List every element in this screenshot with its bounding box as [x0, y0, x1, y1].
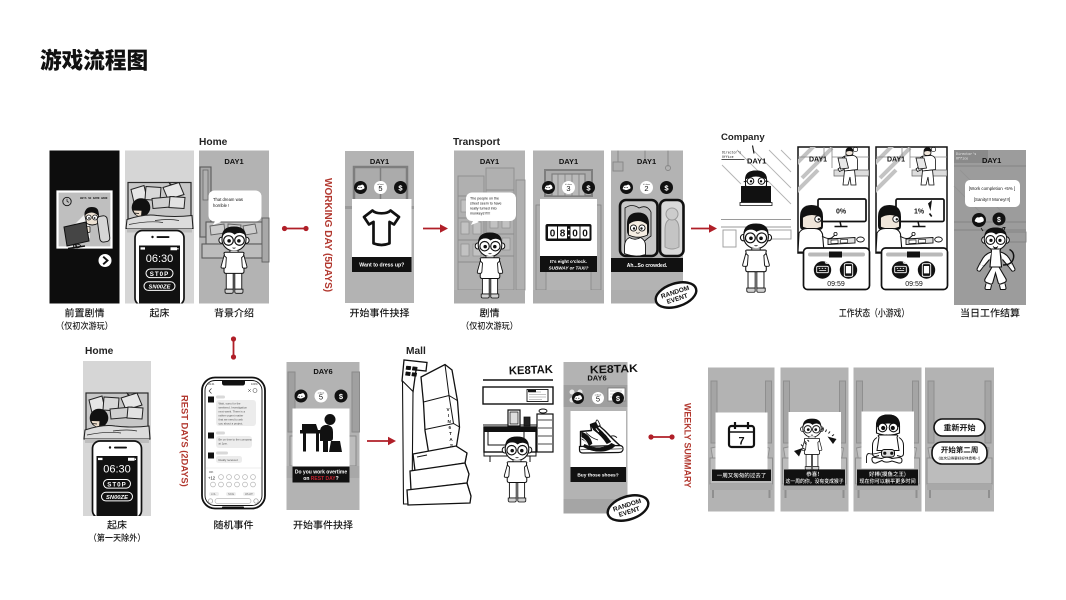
- svg-text:DAY1: DAY1: [747, 157, 766, 166]
- svg-text:DAY1: DAY1: [480, 157, 499, 166]
- svg-text:T: T: [449, 431, 452, 436]
- svg-text:OK: OK: [209, 470, 213, 474]
- svg-text:0: 0: [582, 229, 588, 240]
- svg-text:street seem to have: street seem to have: [470, 202, 502, 206]
- svg-text:it's time: it's time: [565, 183, 573, 186]
- svg-text:REST DAYS (2DAYS): REST DAYS (2DAYS): [180, 395, 190, 487]
- svg-text:Really received: Really received: [219, 458, 239, 462]
- svg-text:8: 8: [560, 229, 566, 240]
- svg-text:ST0P: ST0P: [150, 271, 169, 278]
- svg-text:Mall: Mall: [406, 346, 426, 357]
- svg-text:$: $: [997, 217, 1001, 224]
- svg-text:[Work completion +5% ]: [Work completion +5% ]: [969, 186, 1015, 191]
- svg-text:Transport: Transport: [453, 137, 501, 148]
- svg-text:6: 6: [449, 425, 452, 430]
- svg-text:NICE: NICE: [228, 492, 234, 496]
- svg-text:09:41: 09:41: [208, 382, 215, 386]
- svg-text:0: 0: [572, 229, 578, 240]
- svg-text:The people on the: The people on the: [470, 197, 499, 201]
- svg-text:Buy those shoes?: Buy those shoes?: [577, 473, 618, 479]
- svg-text:0%: 0%: [836, 209, 847, 216]
- svg-text:Company: Company: [721, 132, 765, 143]
- svg-text:06:30: 06:30: [146, 253, 174, 265]
- svg-text:WHAT!: WHAT!: [245, 492, 253, 496]
- svg-text:at least: at least: [595, 393, 602, 396]
- svg-text:at least: at least: [377, 183, 384, 186]
- svg-text:09:59: 09:59: [827, 281, 845, 288]
- svg-text:1%: 1%: [914, 209, 925, 216]
- svg-text:ST0P: ST0P: [107, 481, 126, 488]
- svg-text:S: S: [450, 443, 453, 448]
- svg-text:DAY1: DAY1: [809, 157, 827, 164]
- svg-text:DAY6: DAY6: [587, 374, 606, 383]
- svg-text:at least: at least: [318, 391, 325, 394]
- svg-text:DAY1: DAY1: [370, 157, 389, 166]
- svg-text:Office: Office: [722, 155, 734, 159]
- svg-text:0: 0: [550, 229, 556, 240]
- svg-text:Home: Home: [85, 346, 114, 357]
- svg-text:WEEKLY SUMMARY: WEEKLY SUMMARY: [683, 403, 693, 488]
- svg-text:DAY1: DAY1: [637, 157, 656, 166]
- svg-text:DAY1: DAY1: [982, 156, 1001, 165]
- svg-text:06:30: 06:30: [103, 464, 131, 476]
- svg-text:monkeys?!!!!: monkeys?!!!!: [470, 212, 490, 216]
- svg-text:Want to dress up?: Want to dress up?: [359, 263, 404, 269]
- svg-text:WORKING DAY (5DAYS): WORKING DAY (5DAYS): [322, 178, 333, 292]
- svg-text:09:59: 09:59: [905, 281, 923, 288]
- svg-text:SN00ZE: SN00ZE: [149, 285, 172, 291]
- svg-text:Director's: Director's: [956, 152, 976, 157]
- svg-text:on REST DAY?: on REST DAY?: [303, 476, 338, 482]
- svg-text:DAY1: DAY1: [887, 157, 905, 164]
- svg-text:100%: 100%: [251, 382, 258, 386]
- svg-text:DAY6: DAY6: [313, 367, 332, 376]
- svg-text:DAY1: DAY1: [224, 157, 243, 166]
- svg-text:That dream was: That dream was: [213, 197, 243, 202]
- svg-text:WHYS SO DAMN HARD: WHYS SO DAMN HARD: [80, 197, 108, 200]
- svg-text:LOL: LOL: [211, 492, 216, 496]
- svg-text:Home: Home: [199, 137, 228, 148]
- svg-text:[Sanity!!! Money!!!]: [Sanity!!! Money!!!]: [974, 197, 1010, 202]
- svg-text:Do you work overtime: Do you work overtime: [295, 470, 347, 476]
- svg-text:7: 7: [738, 436, 744, 448]
- svg-text:Office: Office: [956, 157, 968, 162]
- svg-text:Ah...So crowded.: Ah...So crowded.: [627, 263, 668, 269]
- svg-text:KE8TAK: KE8TAK: [509, 364, 554, 378]
- svg-text:at 1pm.: at 1pm.: [219, 442, 229, 446]
- svg-text:horrible !: horrible !: [213, 203, 229, 208]
- svg-text:I: I: [448, 413, 449, 418]
- svg-text:it's time: it's time: [643, 183, 651, 186]
- svg-text:It's eight o'clock.: It's eight o'clock.: [550, 259, 587, 264]
- svg-text:really turned into: really turned into: [470, 207, 497, 211]
- svg-text:SN00ZE: SN00ZE: [106, 495, 129, 501]
- svg-text:Director's: Director's: [722, 151, 741, 155]
- svg-text:you about a project.: you about a project.: [219, 422, 244, 426]
- svg-text:DAY1: DAY1: [559, 157, 578, 166]
- svg-text:SUBWAY or TAXI?: SUBWAY or TAXI?: [549, 266, 589, 271]
- svg-text:+12: +12: [208, 476, 216, 481]
